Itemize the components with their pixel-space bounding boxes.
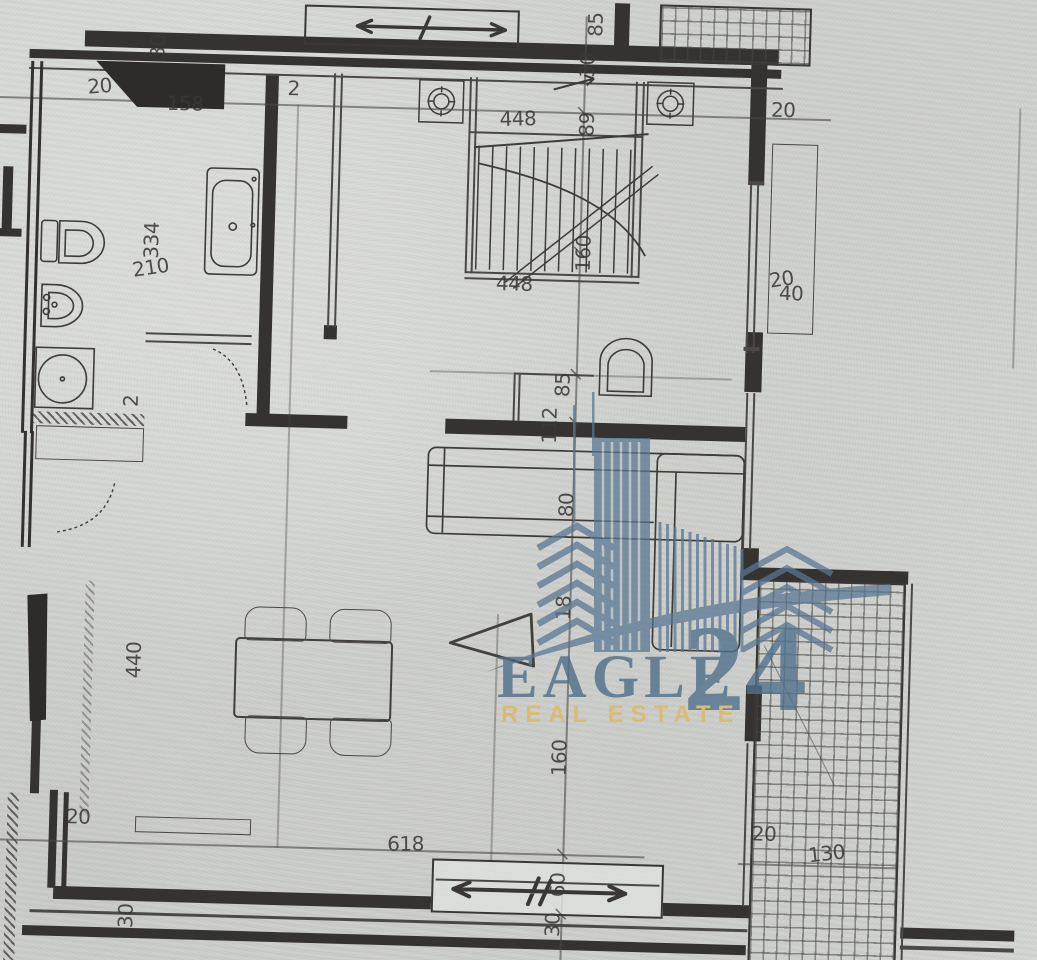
dimension-label: 2 — [119, 394, 143, 407]
dimension-label: 20 — [771, 98, 796, 123]
dimension-label: 30 — [113, 903, 138, 928]
bathtub — [204, 168, 259, 275]
toilet-icon — [599, 338, 653, 396]
dimension-label: 80 — [554, 492, 579, 517]
dimension-label: 618 — [387, 832, 424, 856]
window-arrow — [453, 876, 626, 907]
bidet-icon — [41, 284, 83, 327]
dimension-label: 112 — [537, 407, 562, 444]
dimension-label: 448 — [499, 106, 536, 131]
dimension-label: 20 — [87, 73, 113, 99]
door-arc — [209, 348, 249, 405]
dimension-label: 158 — [167, 91, 204, 116]
dimension-label: 30 — [145, 34, 170, 59]
spotlight-icon — [647, 82, 694, 125]
staircase — [470, 72, 661, 292]
dimension-label: 30 — [575, 53, 600, 78]
floor-plan: 3020158244889853020334210216044820408511… — [0, 0, 1037, 960]
sofa — [423, 447, 744, 652]
dimension-label: 30 — [540, 912, 565, 937]
dimension-label: 20 — [66, 804, 91, 829]
door-arc — [57, 482, 114, 534]
dimension-label: 89 — [574, 112, 599, 137]
dimension-label: 40 — [779, 281, 804, 306]
sink-icon — [35, 347, 95, 409]
wall-fill — [95, 61, 225, 110]
dimension-label: 448 — [496, 271, 533, 296]
dimension-label: 160 — [547, 739, 572, 776]
floor-plan-photo: 3020158244889853020334210216044820408511… — [0, 0, 1037, 960]
cursor-triangle — [450, 612, 535, 666]
dimension-label: 130 — [807, 839, 846, 867]
fixtures-layer — [0, 0, 1037, 960]
dimension-label: 160 — [571, 235, 596, 272]
toilet-icon — [41, 220, 105, 264]
dimension-label: 85 — [550, 372, 575, 397]
wall-fill — [24, 593, 50, 722]
dimension-label: 2 — [287, 76, 300, 100]
dimension-label: 18 — [551, 595, 576, 620]
dimension-label: 60 — [545, 872, 570, 897]
spotlight-icon — [419, 80, 464, 123]
dimension-label: 440 — [121, 641, 146, 678]
window-arrow — [357, 15, 506, 41]
dimension-label: 85 — [583, 12, 608, 37]
balcony-slope-line — [760, 646, 838, 786]
dimension-label: 20 — [751, 821, 776, 846]
